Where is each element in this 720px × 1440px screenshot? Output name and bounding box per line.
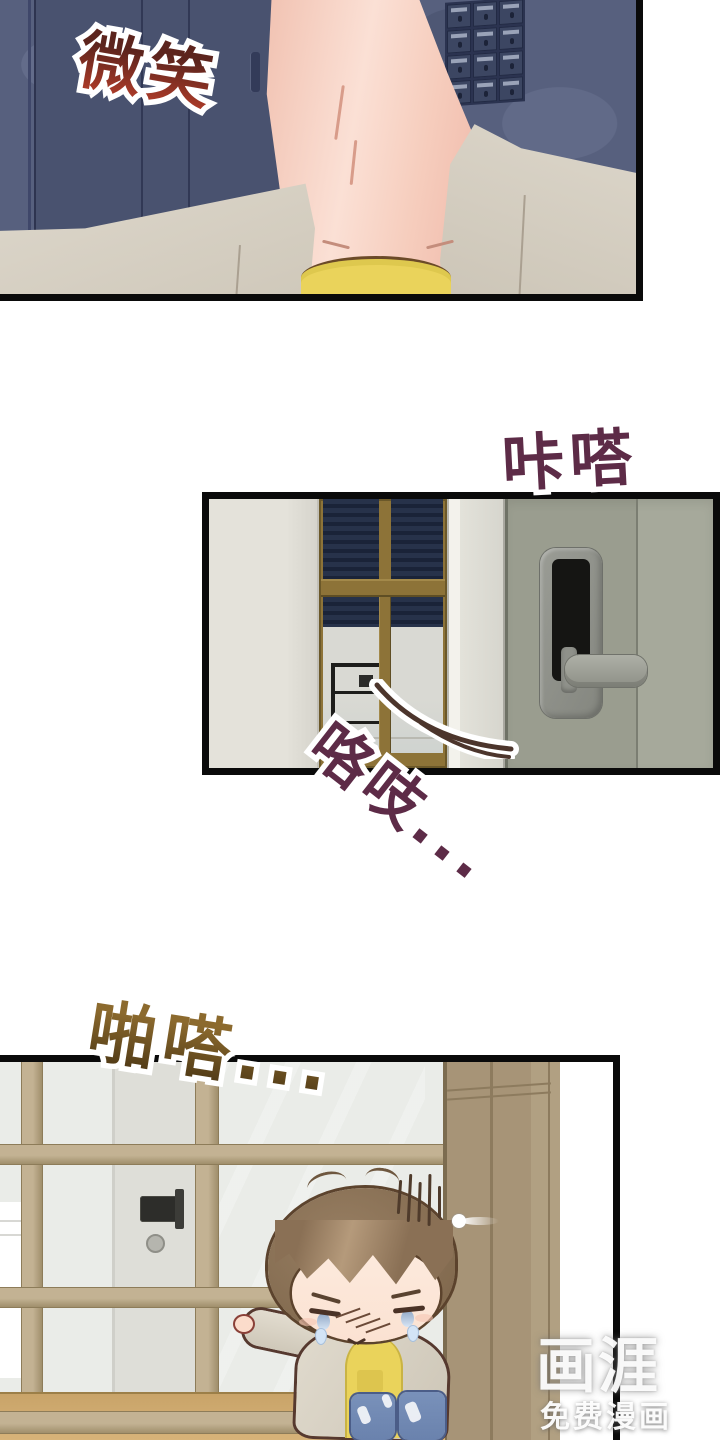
stress-lines xyxy=(438,1186,441,1218)
sfx-click-text: 咔嗒 xyxy=(500,420,640,500)
hallway-wall xyxy=(209,499,319,768)
glass-frame-post xyxy=(22,1062,42,1440)
glass-frame-post xyxy=(196,1062,218,1440)
sparkle-tail xyxy=(461,1217,499,1225)
mailbox-icon xyxy=(499,0,523,25)
mailbox-icon xyxy=(473,1,497,26)
mailbox-icon xyxy=(447,54,471,79)
window-blinds xyxy=(391,597,443,627)
panel-door-lock xyxy=(202,492,720,775)
cheek-blush xyxy=(415,1314,433,1322)
mailbox-grid xyxy=(445,0,525,107)
sfx-click: 咔嗒 咔嗒 xyxy=(500,426,639,495)
glass-frame-rail xyxy=(0,1145,445,1164)
lock-strike-plate xyxy=(175,1189,184,1229)
creak-swoosh-icon xyxy=(369,679,519,759)
window-rail xyxy=(321,579,445,597)
panel-entryway xyxy=(0,1055,620,1440)
inner-front-door xyxy=(112,1062,198,1394)
shirt-logo-patch xyxy=(357,1370,383,1392)
mailbox-icon xyxy=(473,78,497,103)
window-blinds xyxy=(323,597,379,627)
hand xyxy=(235,1316,253,1332)
deadbolt-lock-icon xyxy=(140,1196,178,1222)
mailbox-icon xyxy=(447,28,471,53)
yellow-shirt-collar xyxy=(301,256,451,301)
window-blinds xyxy=(391,499,443,579)
mailbox-icon xyxy=(473,27,497,52)
mailbox-icon xyxy=(499,50,523,75)
jeans-leg xyxy=(399,1392,445,1440)
door-hinge-plate-icon xyxy=(250,52,260,92)
watermark-caption: 免费漫画 xyxy=(540,1392,672,1436)
mailbox-icon xyxy=(499,25,523,50)
mailbox-icon xyxy=(473,52,497,77)
door-seam xyxy=(636,499,638,768)
mailbox-icon xyxy=(447,3,471,28)
cabinet-seam xyxy=(490,1062,493,1440)
cheek-blush xyxy=(299,1318,317,1326)
mailbox-icon xyxy=(499,76,523,101)
door-knob-icon xyxy=(146,1234,165,1253)
entry-door xyxy=(505,499,713,768)
lock-lever-handle xyxy=(565,655,647,687)
window-blinds xyxy=(323,499,379,579)
